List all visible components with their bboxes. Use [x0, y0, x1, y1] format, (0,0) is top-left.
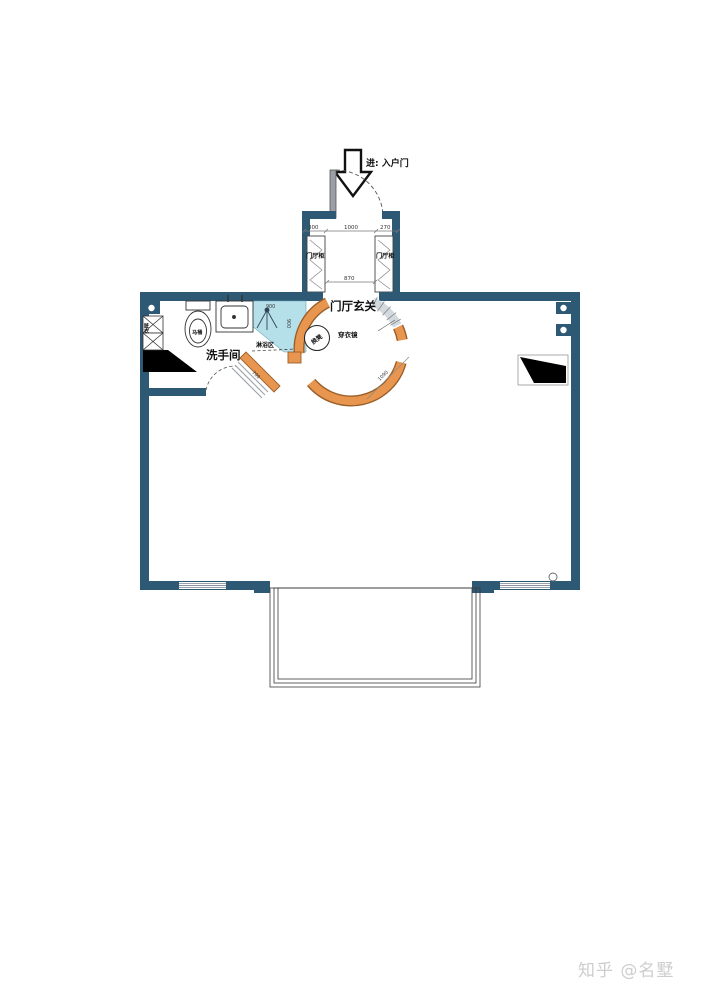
hall-cabinet-right: [375, 236, 393, 292]
corner-drain-circle: [549, 573, 557, 581]
window-bottom-left: [179, 582, 226, 589]
entry-door-label: 进: 入户门: [366, 157, 409, 169]
hall-cabinet-left: [307, 236, 325, 292]
black-wedge-right: [518, 355, 568, 385]
foyer-label: 门厅玄关: [330, 299, 376, 313]
dressing-mirror: [372, 297, 401, 325]
dim-opening: 870: [344, 276, 355, 282]
hall-cabinet-left-label: 门厅柜: [306, 252, 325, 260]
hamper-cabinet: [143, 316, 163, 350]
dim-hall-right: 270: [380, 225, 391, 231]
dim-hall-left: 300: [308, 225, 319, 231]
dim-shower-width: 900: [266, 304, 275, 310]
toilet: [185, 301, 211, 347]
hamper-label: 脏衣: [143, 322, 149, 334]
floorplan-canvas: 进: 入户门 300 1000 270 门厅柜 门厅柜 870: [0, 0, 720, 1005]
floorplan-drawing: 进: 入户门 300 1000 270 门厅柜 门厅柜 870: [0, 0, 720, 1005]
bathroom-south-wall: [140, 388, 206, 396]
watermark: 知乎 @名墅: [578, 961, 674, 981]
window-bottom-right: [500, 582, 550, 589]
bay-outline: [270, 588, 480, 687]
bathroom-door-swing: [206, 366, 236, 390]
entry-arrow-icon: [335, 150, 371, 196]
dim-shower-depth: 900: [285, 319, 291, 328]
black-wedge-left: [143, 350, 197, 372]
shower-label: 淋浴区: [256, 341, 274, 349]
dim-hall-mid: 1000: [344, 225, 358, 231]
mirror-label: 穿衣镜: [338, 330, 358, 339]
hall-cabinet-right-label: 门厅柜: [376, 252, 395, 260]
bathroom-door-leaf: [240, 352, 280, 392]
toilet-label: 马桶: [192, 328, 202, 336]
bathroom-label: 洗手间: [206, 348, 241, 362]
